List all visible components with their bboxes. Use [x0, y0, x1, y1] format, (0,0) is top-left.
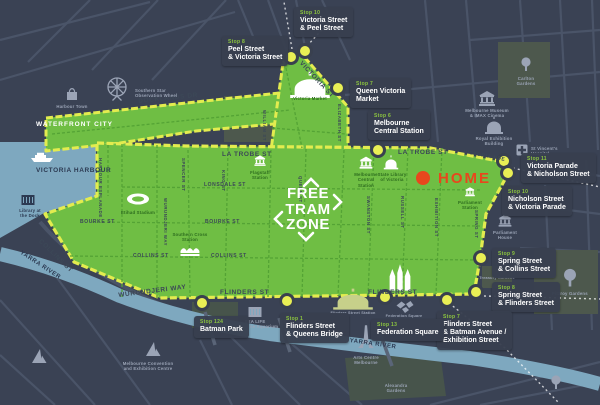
- stop-label-spring-collins: Stop 9 Spring Street & Collins Street: [492, 248, 556, 278]
- stop-name: Batman Park: [200, 326, 243, 334]
- street-label-elizabeth: ELIZABETH ST: [337, 104, 342, 142]
- caption-state-library: State Library of Victoria: [372, 172, 412, 183]
- stop-marker: [281, 295, 294, 308]
- free-tram-zone-map: FREE TRAM ZONE HOME Stop 10 Victoria Str…: [0, 0, 600, 405]
- stop-marker: [196, 297, 209, 310]
- zone-title: FREE TRAM ZONE: [283, 186, 333, 233]
- stop-name: Queen Victoria Market: [356, 88, 405, 105]
- library-at-the-dock-icon: [22, 195, 35, 205]
- etihad-stadium-icon: [127, 194, 149, 205]
- caption-arts-centre: Arts Centre Melbourne: [336, 355, 396, 366]
- stop-marker: [372, 144, 385, 157]
- stop-name: Victoria Street & Peel Street: [300, 17, 347, 34]
- home-marker: [416, 171, 430, 185]
- caption-southern-cross-station: Southern Cross Station: [160, 232, 220, 243]
- stop-name: Flinders Street & Queens Bridge: [286, 323, 343, 340]
- caption-carlton-gardens: Carlton Gardens: [496, 76, 556, 87]
- caption-victoria-market: Victoria Market: [280, 96, 340, 101]
- street-label-bourke: BOURKE ST: [205, 219, 240, 225]
- stop-name: Victoria Parade & Nicholson Street: [527, 163, 590, 180]
- stop-label-peel-victoria: Stop 8 Peel Street & Victoria Street: [222, 36, 288, 66]
- stop-label-spring-flinders: Stop 8 Spring Street & Flinders Street: [492, 282, 560, 312]
- stop-label-queen-victoria-market: Stop 7 Queen Victoria Market: [350, 78, 411, 108]
- street-label-king: KING ST: [221, 170, 226, 192]
- caption-flagstaff-station: Flagstaff Station: [230, 170, 290, 181]
- water-label-victoria-harbour: VICTORIA HARBOUR: [36, 167, 111, 174]
- stop-name: Spring Street & Collins Street: [498, 258, 550, 275]
- sealife-aquarium-icon: [249, 307, 262, 317]
- street-label-exhibition: EXHIBITION ST: [434, 198, 439, 237]
- stop-name: Federation Square: [377, 329, 438, 337]
- stop-marker: [470, 286, 483, 299]
- street-label-la-trobe: LA TROBE ST: [398, 149, 448, 156]
- stop-name: Melbourne Central Station: [374, 120, 424, 137]
- caption-etihad-stadium: Etihad Stadium: [108, 210, 168, 215]
- caption-alexandra-gardens: Alexandra Gardens: [366, 383, 426, 394]
- southern-cross-station-icon: [181, 248, 200, 256]
- street-label-flinders: FLINDERS ST: [368, 289, 417, 296]
- street-label-flinders: FLINDERS ST: [220, 289, 269, 296]
- street-label-la-trobe: LA TROBE ST: [222, 151, 272, 158]
- street-label-russell: RUSSELL ST: [400, 196, 405, 229]
- street-label-william: WILLIAM ST: [262, 110, 267, 141]
- stop-label-victoria-peel: Stop 10 Victoria Street & Peel Street: [294, 7, 353, 37]
- street-label-swanston: SWANSTON ST: [366, 196, 371, 234]
- caption-royal-exhibition-building: Royal Exhibition Building: [464, 136, 524, 147]
- caption-southern-star: Southern Star Observation Wheel: [135, 88, 177, 99]
- street-label-spencer: SPENCER ST: [181, 158, 186, 191]
- street-label-collins: COLLINS ST: [211, 253, 247, 259]
- street-label-bourke: BOURKE ST: [80, 219, 115, 225]
- caption-convention-centre: Melbourne Convention and Exhibition Cent…: [118, 361, 178, 372]
- caption-melbourne-museum: Melbourne Museum & IMAX Cinema: [457, 108, 517, 119]
- stop-label-flinders-batman-exhibition: Stop 7 Flinders Street & Batman Avenue /…: [437, 311, 512, 350]
- stop-marker: [502, 167, 515, 180]
- caption-library-at-the-dock: Library at the Dock: [0, 208, 60, 219]
- caption-parliament-house: Parliament House: [475, 230, 535, 241]
- stop-label-victoria-pde-nicholson: Stop 11 Victoria Parade & Nicholson Stre…: [521, 153, 596, 183]
- stop-marker: [299, 45, 312, 58]
- caption-harbour-town: Harbour Town: [42, 104, 102, 109]
- caption-parliament-station: Parliament Station: [440, 200, 500, 211]
- stop-marker: [441, 294, 454, 307]
- stop-name: Peel Street & Victoria Street: [228, 46, 282, 63]
- home-label: HOME: [438, 170, 491, 187]
- stop-marker: [475, 252, 488, 265]
- stop-name: Flinders Street & Batman Avenue / Exhibi…: [443, 321, 506, 346]
- stop-label-nicholson-victoria-pde: Stop 10 Nicholson Street & Victoria Para…: [502, 186, 572, 216]
- stop-label-batman-park: Stop 124 Batman Park: [194, 316, 249, 338]
- stop-label-flinders-queens-bridge: Stop 1 Flinders Street & Queens Bridge: [280, 313, 349, 343]
- stop-label-melbourne-central: Stop 6 Melbourne Central Station: [368, 110, 430, 140]
- street-label-collins: COLLINS ST: [133, 253, 169, 259]
- stop-label-federation-square: Stop 13 Federation Square: [371, 319, 444, 341]
- stop-name: Nicholson Street & Victoria Parade: [508, 196, 566, 213]
- area-label-waterfront-city: WATERFRONT CITY: [36, 121, 113, 128]
- stop-name: Spring Street & Flinders Street: [498, 292, 554, 309]
